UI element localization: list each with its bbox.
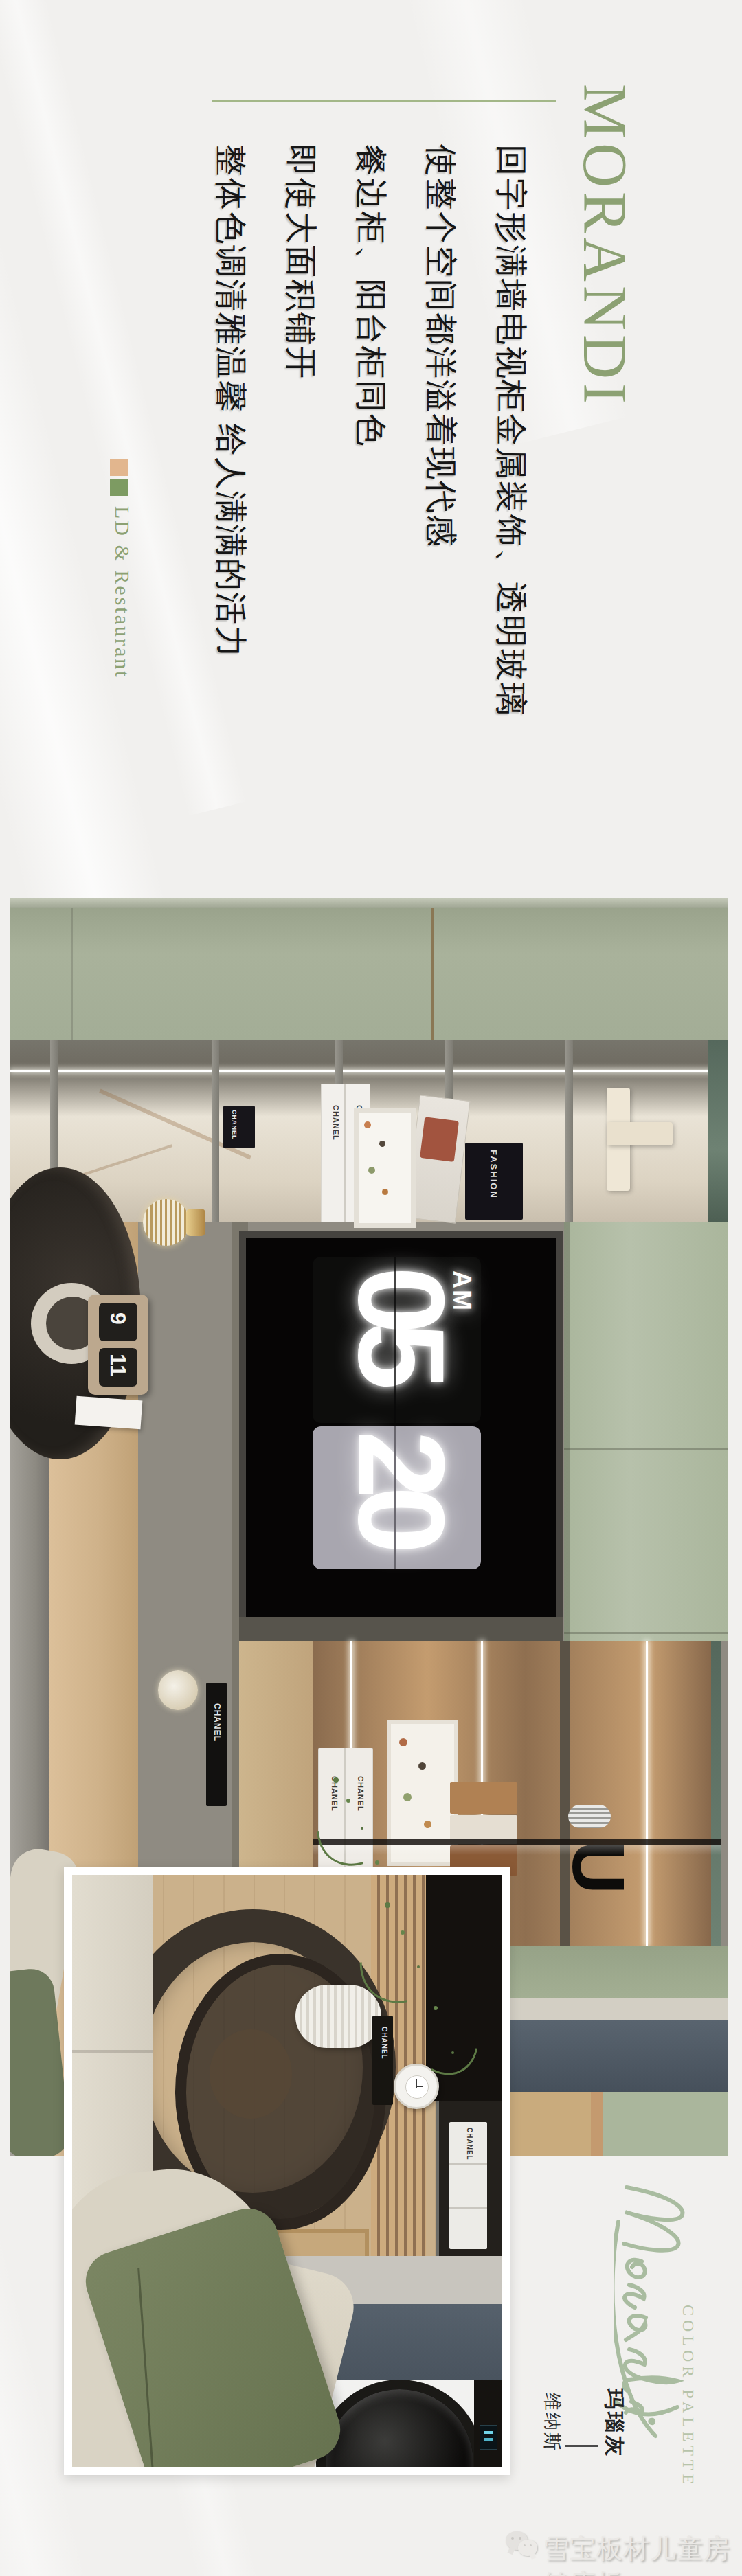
glass-display-cabinet: CHANEL <box>436 2101 502 2277</box>
header-rule <box>212 100 556 102</box>
book-spine-text: CHANEL <box>231 1110 237 1140</box>
poster-root: MORANDI 回字形满墙电视柜金属装饰、透明玻璃 使整个空间都洋溢着现代感 餐… <box>0 0 742 2576</box>
plant-leaves <box>333 1777 339 1783</box>
shelf-led-strip <box>10 1070 728 1072</box>
plant-leaves <box>385 1902 390 1908</box>
book-spine-black: CHANEL <box>372 2016 393 2105</box>
wechat-eye <box>524 2544 526 2546</box>
flip-clock-minute: 20 <box>340 1431 462 1542</box>
washer-control-strip <box>474 2380 502 2467</box>
poster-title: MORANDI <box>574 84 636 408</box>
display-segment <box>484 2438 493 2441</box>
sage-tall-cabinets <box>564 1222 728 1641</box>
desk-flip-clock: 9 11 <box>88 1295 148 1395</box>
brand-label: LD & Restaurant <box>112 506 133 679</box>
sage-upper-cabinets <box>10 908 728 1040</box>
book-spine-text: CHANEL <box>466 2128 473 2161</box>
wechat-eye <box>511 2537 514 2540</box>
display-segment <box>484 2431 493 2434</box>
brand-square-green <box>110 479 128 496</box>
wall-sconce-small <box>158 1670 198 1710</box>
book-spine-gap <box>449 2163 487 2165</box>
wood-strip <box>591 2092 603 2156</box>
book-spine-text: CHANEL <box>332 1105 339 1141</box>
book-spine-gap <box>344 1084 346 1222</box>
palette-name-agate-gray: 玛瑙灰 <box>604 2389 625 2459</box>
intro-column-1: 回字形满墙电视柜金属装饰、透明玻璃 <box>495 144 528 716</box>
book-spine-text: CHANEL <box>381 2027 387 2060</box>
white-book <box>75 1396 143 1430</box>
wall-sconce-gold <box>143 1199 190 1246</box>
wechat-icon <box>506 2530 539 2560</box>
cabinet-seam <box>431 908 434 1040</box>
book-spine-text: FASHION <box>489 1150 498 1199</box>
wechat-bubble-tail <box>507 2547 515 2555</box>
book-spines-white: CHANEL <box>449 2122 487 2249</box>
inset-photo: CHANEL CHANEL <box>72 1875 502 2467</box>
stacked-book <box>450 1782 517 1814</box>
intro-column-2: 使整个空间都洋溢着现代感 <box>425 144 458 548</box>
rolled-towel <box>568 1805 611 1828</box>
art-frame-small <box>354 1108 416 1228</box>
tv-screen: 05 20 AM <box>239 1231 563 1624</box>
cabinet-edge-shadow <box>564 1222 570 1641</box>
clock-face <box>405 2075 429 2099</box>
palette-name-venus: 维纳斯 <box>543 2393 561 2452</box>
intro-column-5: 整体色调清雅温馨 给人满满的活力 <box>215 144 247 659</box>
signature-caption: COLOR PALETTE <box>680 2305 697 2488</box>
book-spine-gap <box>449 2207 487 2209</box>
print-speck <box>418 1762 426 1770</box>
brand-square-beige <box>110 459 128 476</box>
intro-column-4: 即使大面积铺开 <box>285 144 317 380</box>
wall-below-tv <box>239 1617 563 1641</box>
desk-clock-card: 9 <box>99 1303 137 1341</box>
niche-led-vertical <box>646 1641 648 1946</box>
inset-photo-frame: CHANEL CHANEL <box>64 1867 510 2475</box>
flip-split-line <box>394 1426 396 1569</box>
cabinet-seam <box>564 1632 728 1634</box>
book-fashion-black: FASHION <box>465 1143 523 1220</box>
print-speck <box>368 1167 375 1174</box>
print-speck <box>399 1738 407 1746</box>
sage-panel <box>603 2092 728 2156</box>
magazine-art <box>420 1117 459 1162</box>
table-disc-bronze <box>210 2029 292 2119</box>
book-spine-black: CHANEL <box>206 1683 227 1806</box>
wechat-bubble-small <box>518 2540 537 2556</box>
green-marble-endpanel <box>708 1040 728 1222</box>
intro-column-3: 餐边柜、阳台柜同色 <box>355 144 387 447</box>
print-speck <box>379 1141 385 1147</box>
wechat-eye <box>530 2544 532 2546</box>
desk-clock-card: 11 <box>99 1348 137 1387</box>
shelf-divider <box>560 1641 570 1946</box>
shelf-divider <box>565 1040 573 1222</box>
flip-clock-meridiem: AM <box>449 1270 474 1312</box>
ribbed-vase <box>295 1985 381 2048</box>
flip-clock-minute-card: 20 <box>313 1426 481 1569</box>
book-stack-black: CHANEL <box>223 1106 255 1148</box>
palette-divider-dash <box>565 2445 598 2447</box>
watermark-text: 雪宝板材儿童房健康板 <box>543 2531 742 2576</box>
shelf-divider <box>212 1040 219 1222</box>
green-marble-endpanel <box>711 1641 721 1946</box>
wechat-bubble-tail <box>530 2553 537 2560</box>
desk-clock-digit: 9 <box>107 1312 129 1325</box>
print-speck <box>382 1189 388 1195</box>
book-spine-text: CHANEL <box>213 1703 221 1742</box>
clock-hand <box>416 2086 423 2087</box>
cabinet-seam <box>564 1448 728 1450</box>
flip-split-line <box>394 1257 396 1423</box>
sconce-knob <box>186 1209 205 1236</box>
cushion-seam <box>72 2050 153 2053</box>
flip-clock-hour: 05 <box>340 1266 462 1378</box>
pillow-seam <box>137 2268 155 2467</box>
letter-decor-bar <box>607 1122 673 1145</box>
cabinet-seam <box>71 908 73 1040</box>
upper-shelf-niche: CHANEL CHANEL CHANEL FASHION <box>10 1040 728 1222</box>
wechat-eye <box>519 2537 521 2540</box>
desk-clock-digit: 11 <box>107 1354 129 1377</box>
print-speck <box>364 1121 371 1128</box>
washer-display <box>480 2425 497 2450</box>
print-speck <box>424 1821 431 1828</box>
